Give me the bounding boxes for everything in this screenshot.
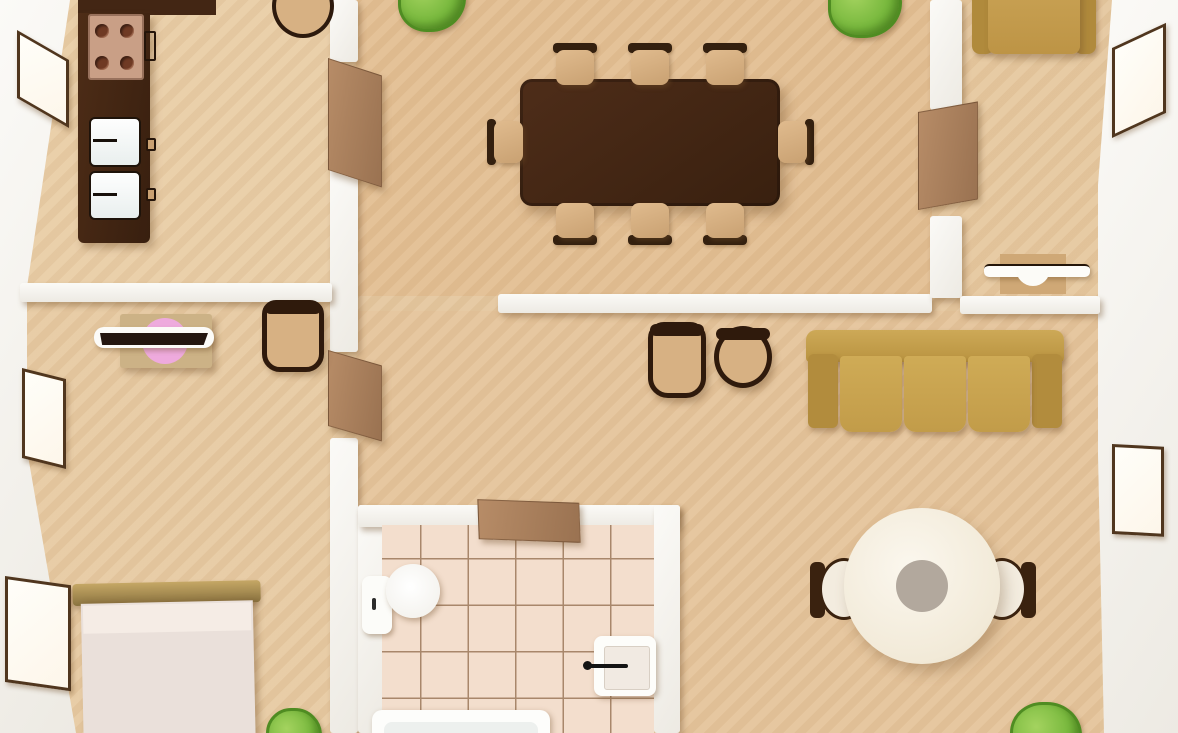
sofa-cushion bbox=[840, 356, 902, 432]
door-bathroom bbox=[477, 499, 580, 543]
sofa-cushion bbox=[904, 356, 966, 432]
dining-chair bbox=[626, 203, 674, 245]
bed bbox=[72, 578, 267, 733]
dining-table bbox=[520, 79, 780, 206]
stove-burner bbox=[95, 56, 109, 70]
round-table-center bbox=[896, 560, 948, 612]
hallway-armchair bbox=[972, 0, 1096, 58]
window-bedroom-lower bbox=[5, 576, 71, 691]
stove-burner bbox=[120, 24, 134, 38]
wall-dining-hall-upper bbox=[930, 0, 962, 110]
bedroom-armchair bbox=[262, 300, 324, 372]
dining-chair bbox=[626, 43, 674, 85]
dishwasher bbox=[89, 171, 141, 220]
bathroom-wall-top-left bbox=[358, 505, 480, 527]
wall-dining-hall-lower bbox=[930, 216, 962, 298]
stove-burner bbox=[120, 56, 134, 70]
door-dining-hallway bbox=[918, 101, 978, 210]
floor-plan bbox=[0, 0, 1178, 733]
door-kitchen-dining bbox=[328, 58, 382, 188]
dining-chair bbox=[551, 43, 599, 85]
bathtub-interior bbox=[384, 722, 538, 733]
toilet-flush-handle bbox=[372, 598, 376, 610]
bed-pillow bbox=[83, 602, 252, 634]
armchair-seat bbox=[988, 0, 1080, 54]
sofa-cushion bbox=[968, 356, 1030, 432]
wall-bedroom-bath-divider bbox=[330, 438, 358, 733]
dining-chair bbox=[778, 117, 814, 167]
bathroom-sink-basin bbox=[604, 646, 650, 690]
wall-dining-living bbox=[498, 294, 932, 313]
door-bedroom-living bbox=[328, 350, 382, 441]
toilet-bowl bbox=[386, 564, 440, 618]
counter-handle bbox=[144, 31, 156, 61]
sofa bbox=[806, 330, 1064, 434]
dining-chair bbox=[701, 203, 749, 245]
stove-cooktop bbox=[88, 14, 144, 80]
faucet-knob bbox=[583, 661, 592, 670]
sofa-armrest bbox=[1032, 354, 1062, 428]
tv-screen bbox=[100, 333, 208, 345]
stove-burner bbox=[95, 24, 109, 38]
wall-hall-living bbox=[960, 296, 1100, 314]
window-bedroom-upper bbox=[22, 368, 66, 469]
counter-knob bbox=[146, 138, 156, 151]
square-ottoman-chair bbox=[648, 322, 706, 398]
faucet bbox=[588, 664, 628, 668]
bathroom-tiled-floor bbox=[382, 525, 654, 733]
oven bbox=[89, 117, 141, 167]
sofa-armrest bbox=[808, 354, 838, 428]
bathroom-wall-right bbox=[654, 505, 680, 733]
dining-chair bbox=[701, 43, 749, 85]
dining-chair bbox=[487, 117, 523, 167]
wall-kitchen-dining-mid bbox=[330, 166, 358, 352]
round-ottoman-chair bbox=[714, 326, 772, 388]
wall-kitchen-dining-upper bbox=[330, 0, 358, 62]
window-living-room bbox=[1112, 444, 1164, 537]
counter-knob bbox=[146, 188, 156, 201]
dining-chair bbox=[551, 203, 599, 245]
